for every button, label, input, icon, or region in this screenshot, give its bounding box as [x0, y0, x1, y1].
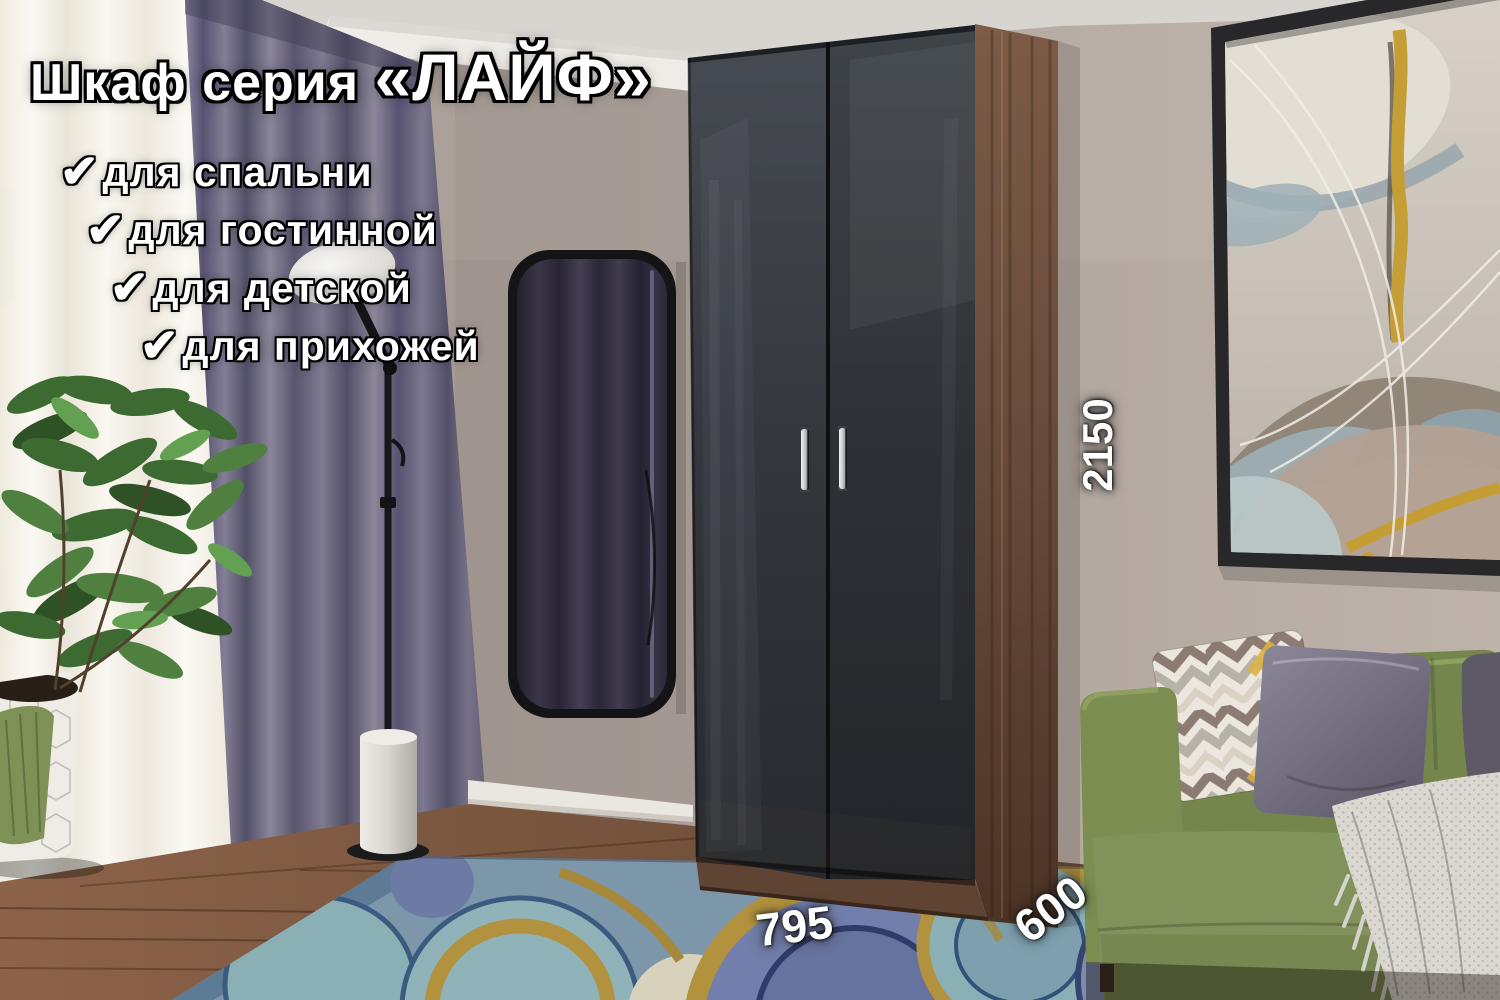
dimension-height-label: 2150	[1077, 390, 1119, 500]
feature-item: ✔ для прихожей	[140, 326, 480, 372]
check-icon: ✔	[110, 264, 149, 310]
check-icon: ✔	[140, 322, 179, 368]
feature-label: для гостинной	[129, 210, 438, 251]
check-icon: ✔	[60, 148, 99, 194]
dimension-width-label: 795	[753, 898, 835, 953]
feature-item: ✔ для гостинной	[86, 210, 438, 256]
promo-title: Шкаф серия «ЛАЙФ»	[30, 44, 652, 110]
feature-item: ✔ для спальни	[60, 152, 373, 198]
feature-label: для спальни	[103, 152, 373, 193]
door-gap	[826, 42, 830, 879]
wall-mirror	[508, 250, 686, 718]
door-handle-right	[838, 426, 847, 491]
title-prefix: Шкаф серия	[30, 54, 359, 112]
feature-item: ✔ для детской	[110, 268, 412, 314]
series-name: «ЛАЙФ»	[375, 40, 652, 114]
wardrobe	[688, 24, 1080, 928]
product-promo-image: Шкаф серия «ЛАЙФ» ✔ для спальни ✔ для го…	[0, 0, 1500, 1000]
feature-label: для детской	[153, 268, 412, 309]
mirror-glass	[517, 259, 667, 709]
door-handle-left	[800, 427, 809, 492]
check-icon: ✔	[86, 206, 125, 252]
feature-label: для прихожей	[183, 326, 480, 367]
wardrobe-side-panel	[975, 24, 1058, 928]
